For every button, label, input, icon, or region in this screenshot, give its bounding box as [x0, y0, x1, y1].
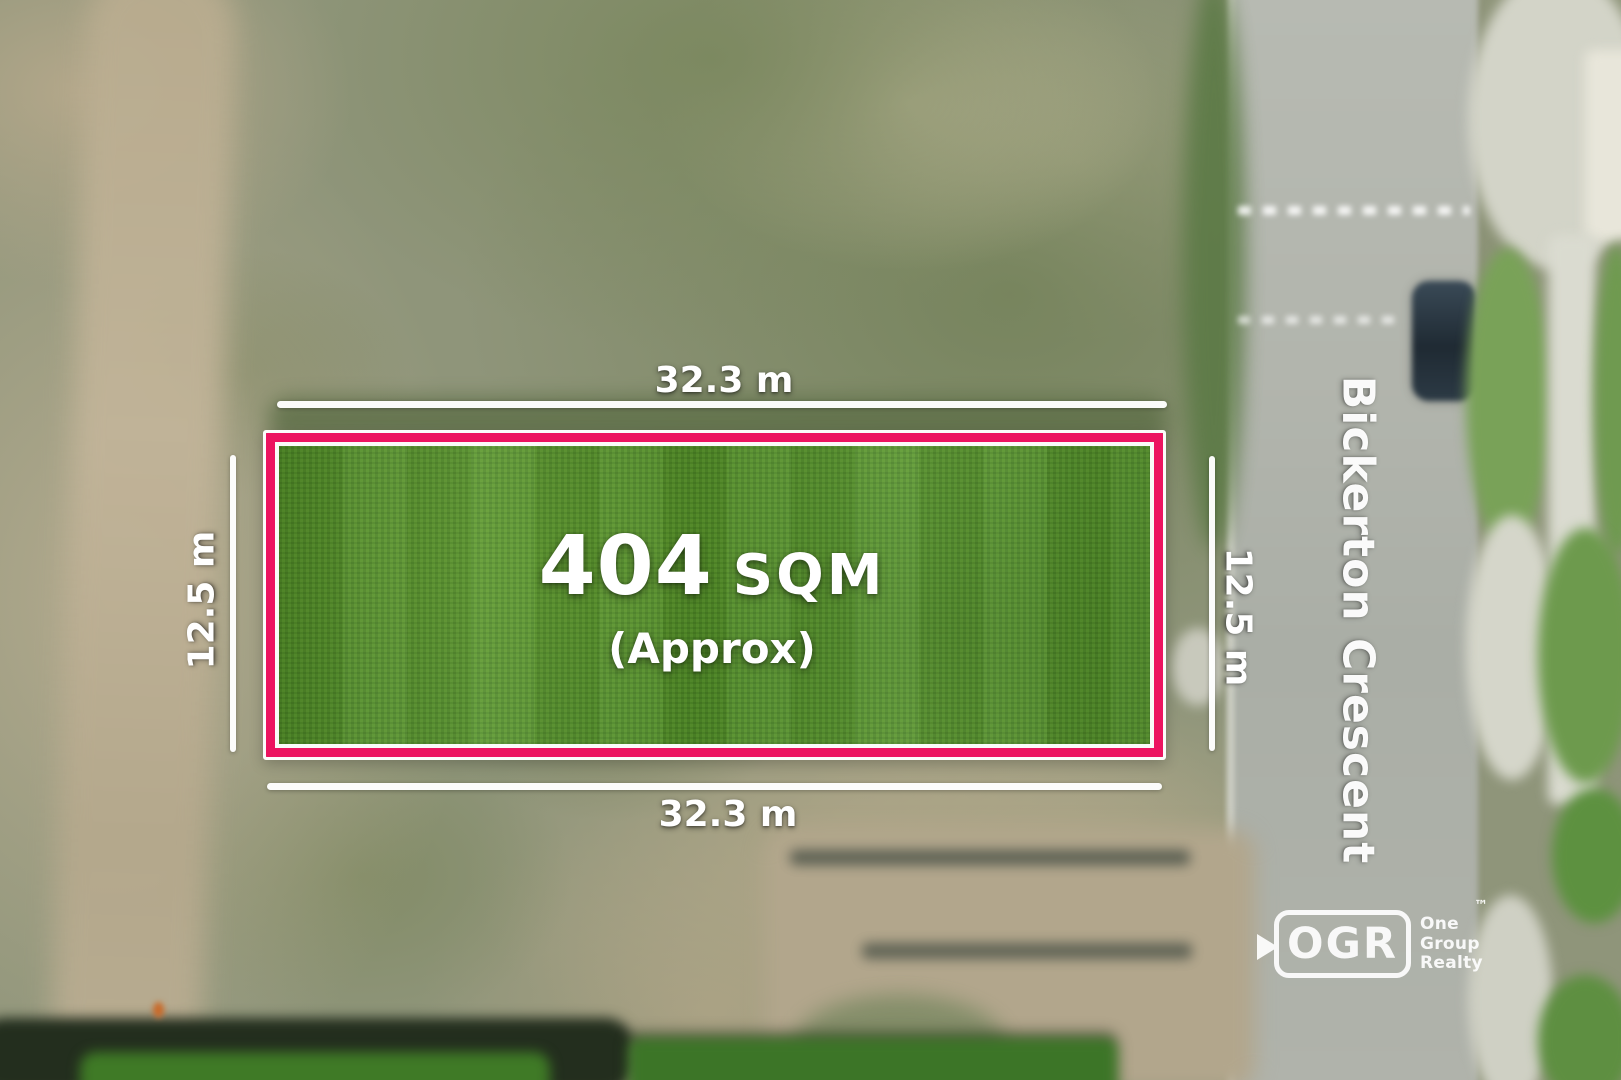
ogr-logo-name: One Group Realty — [1420, 915, 1483, 974]
dimension-line-bottom — [267, 783, 1162, 790]
ogr-logo: OGR ™ One Group Realty — [1256, 898, 1506, 990]
lawn-strip — [80, 1052, 550, 1080]
lot-area-approx: (Approx) — [539, 624, 886, 673]
lawn-strip — [628, 1038, 1118, 1080]
house-roof — [1585, 50, 1621, 240]
lot-area-unit: SQM — [733, 543, 886, 608]
lot-area-annotation: 404SQM (Approx) — [539, 519, 886, 673]
dimension-line-right — [1209, 456, 1215, 751]
ogr-name-line3: Realty — [1420, 954, 1483, 974]
dimension-label-left: 12.5 m — [182, 531, 223, 670]
nature-strip — [1466, 248, 1550, 548]
concrete-patch — [1172, 628, 1224, 706]
street-name-label: Bickerton Crescent — [1333, 376, 1384, 865]
dimension-label-top: 32.3 m — [655, 360, 794, 401]
road-marking-dashes — [1238, 206, 1470, 215]
ogr-logo-abbr: OGR — [1287, 923, 1398, 966]
dimension-label-bottom: 32.3 m — [659, 794, 798, 835]
road-marking-dashes — [1238, 316, 1406, 324]
lot-area-value: 404 — [539, 519, 713, 614]
slab-edge — [790, 850, 1190, 865]
ogr-name-line2: Group — [1420, 935, 1483, 955]
trademark-symbol: ™ — [1474, 898, 1488, 914]
ogr-name-line1: One — [1420, 915, 1483, 935]
aerial-photo: 404SQM (Approx) 32.3 m 32.3 m 12.5 m 12.… — [0, 0, 1621, 1080]
slab-edge — [862, 943, 1192, 959]
dimension-line-left — [230, 455, 236, 752]
dimension-line-top — [277, 401, 1167, 408]
dimension-label-right: 12.5 m — [1218, 548, 1259, 687]
ogr-logo-box: OGR — [1274, 910, 1411, 978]
orange-marker — [153, 1002, 164, 1018]
